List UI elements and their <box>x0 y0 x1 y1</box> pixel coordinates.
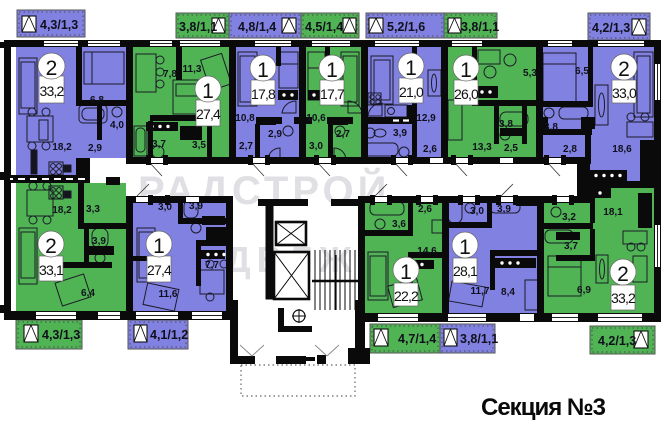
svg-text:6,4: 6,4 <box>81 288 95 299</box>
svg-text:2,6: 2,6 <box>418 204 432 215</box>
svg-text:2,6: 2,6 <box>423 144 437 155</box>
svg-text:1: 1 <box>460 59 472 82</box>
svg-text:2: 2 <box>617 263 629 286</box>
svg-text:1: 1 <box>405 57 417 80</box>
svg-text:1: 1 <box>257 59 269 82</box>
svg-text:10,6: 10,6 <box>306 113 326 124</box>
svg-text:4,7/1,4: 4,7/1,4 <box>398 332 436 346</box>
svg-text:18,2: 18,2 <box>52 205 72 216</box>
svg-text:1: 1 <box>326 59 338 82</box>
svg-text:3,7: 3,7 <box>564 241 578 252</box>
svg-text:3,9: 3,9 <box>393 128 407 139</box>
svg-text:3,6: 3,6 <box>392 219 406 230</box>
svg-text:33,2: 33,2 <box>39 83 64 99</box>
svg-text:6,8: 6,8 <box>90 95 104 106</box>
svg-text:3,2: 3,2 <box>562 212 576 223</box>
svg-text:2,8: 2,8 <box>563 144 577 155</box>
svg-text:1: 1 <box>153 235 165 258</box>
svg-text:28,1: 28,1 <box>453 263 478 279</box>
svg-text:3,8/1,1: 3,8/1,1 <box>460 332 498 346</box>
svg-text:2: 2 <box>45 235 57 258</box>
svg-text:6,5: 6,5 <box>575 66 589 77</box>
svg-text:Секция №3: Секция №3 <box>481 394 606 421</box>
svg-text:21,0: 21,0 <box>399 84 424 100</box>
svg-text:3,0: 3,0 <box>309 141 323 152</box>
svg-text:17,7: 17,7 <box>320 86 345 102</box>
svg-text:3,5: 3,5 <box>192 140 206 151</box>
svg-text:33,0: 33,0 <box>612 85 637 101</box>
svg-text:3,8: 3,8 <box>544 122 558 133</box>
svg-text:4,2/1,3: 4,2/1,3 <box>592 21 630 35</box>
svg-text:18,1: 18,1 <box>603 207 623 218</box>
svg-text:1: 1 <box>459 236 471 259</box>
svg-text:3,8/1,1: 3,8/1,1 <box>461 20 499 34</box>
svg-text:2,5: 2,5 <box>504 143 518 154</box>
svg-text:4,3/1,3: 4,3/1,3 <box>42 328 80 342</box>
svg-text:33,2: 33,2 <box>611 290 636 306</box>
svg-text:18,2: 18,2 <box>52 142 72 153</box>
svg-text:3,3: 3,3 <box>86 204 100 215</box>
svg-text:3,8/1,1: 3,8/1,1 <box>179 20 217 34</box>
svg-text:12,9: 12,9 <box>416 113 436 124</box>
svg-text:2: 2 <box>46 57 58 80</box>
svg-text:3,9: 3,9 <box>497 204 511 215</box>
svg-text:11,3: 11,3 <box>183 64 202 75</box>
svg-text:10,8: 10,8 <box>235 113 255 124</box>
svg-text:3,9: 3,9 <box>92 236 106 247</box>
svg-text:4,3/1,3: 4,3/1,3 <box>40 18 78 32</box>
svg-text:4,0: 4,0 <box>110 120 124 131</box>
svg-text:2,9: 2,9 <box>88 143 102 154</box>
svg-text:4,5/1,4: 4,5/1,4 <box>305 20 343 34</box>
svg-text:11,7: 11,7 <box>471 286 490 297</box>
svg-text:5,2/1,6: 5,2/1,6 <box>387 20 425 34</box>
svg-text:3,0: 3,0 <box>158 202 172 213</box>
svg-text:18,6: 18,6 <box>612 144 632 155</box>
svg-text:7,8: 7,8 <box>163 69 177 80</box>
svg-text:2,7: 2,7 <box>239 141 253 152</box>
svg-text:3,9: 3,9 <box>189 201 203 212</box>
svg-text:13,3: 13,3 <box>472 142 492 153</box>
svg-text:5,3: 5,3 <box>523 68 537 79</box>
svg-text:4,1/1,2: 4,1/1,2 <box>150 328 188 342</box>
svg-text:8,4: 8,4 <box>501 287 515 298</box>
svg-text:26,0: 26,0 <box>454 86 479 102</box>
svg-text:17,8: 17,8 <box>251 86 276 102</box>
svg-text:2: 2 <box>618 58 630 81</box>
svg-text:2,9: 2,9 <box>268 129 282 140</box>
svg-text:7,7: 7,7 <box>205 260 219 271</box>
svg-text:3,7: 3,7 <box>152 139 166 150</box>
svg-text:2,7: 2,7 <box>336 129 350 140</box>
svg-text:4,8/1,4: 4,8/1,4 <box>238 20 276 34</box>
svg-text:1: 1 <box>202 80 214 103</box>
svg-text:4,2/1,3: 4,2/1,3 <box>598 334 636 348</box>
svg-text:1: 1 <box>400 261 412 284</box>
svg-text:14,6: 14,6 <box>417 246 437 257</box>
svg-text:22,2: 22,2 <box>394 288 419 304</box>
svg-text:27,4: 27,4 <box>147 262 172 278</box>
svg-text:3,8: 3,8 <box>499 119 513 130</box>
svg-text:27,4: 27,4 <box>196 106 221 122</box>
svg-text:11,6: 11,6 <box>159 289 178 300</box>
svg-text:6,9: 6,9 <box>577 285 591 296</box>
svg-text:3,0: 3,0 <box>470 206 484 217</box>
svg-text:33,1: 33,1 <box>39 262 64 278</box>
